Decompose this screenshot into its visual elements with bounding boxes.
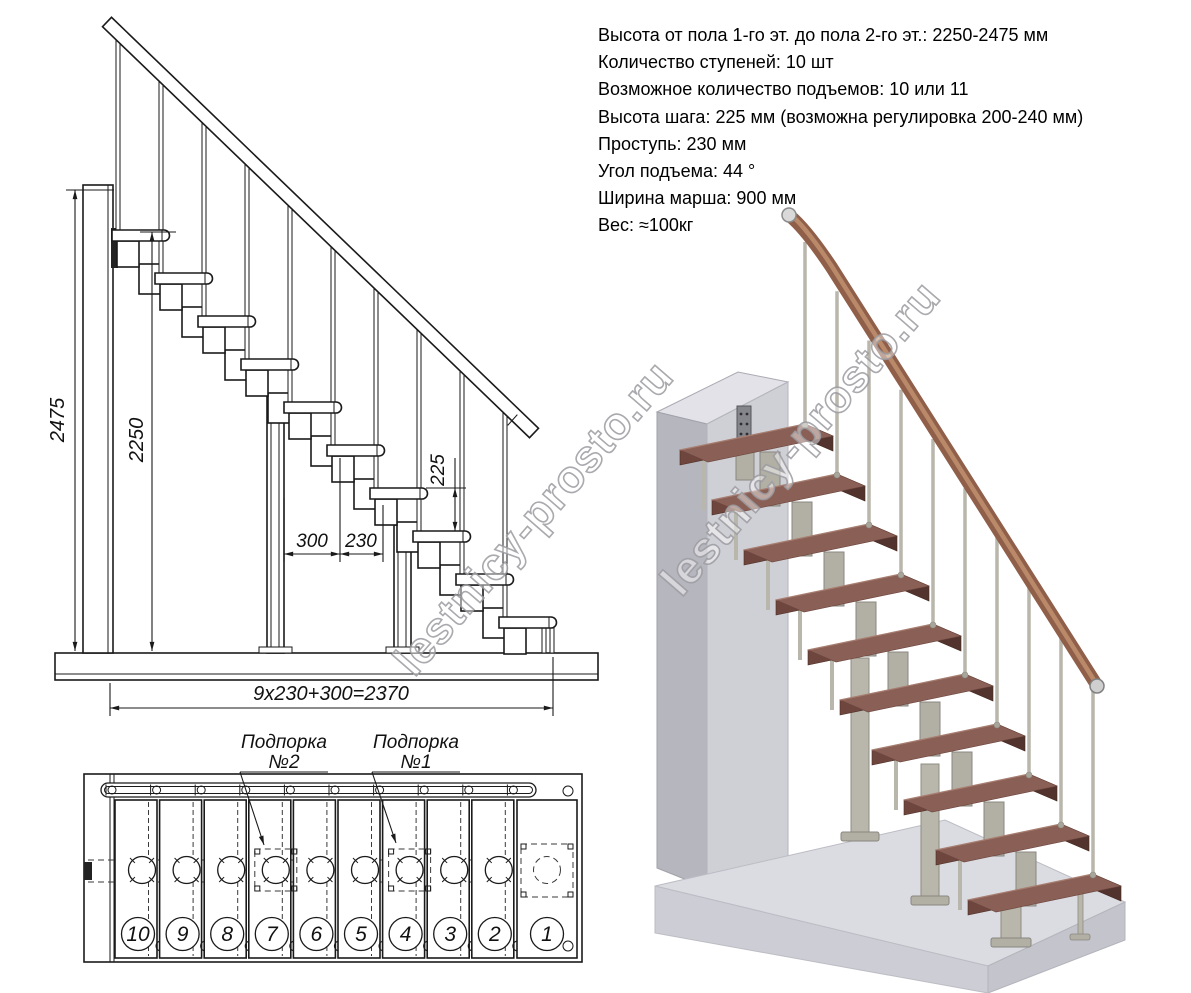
- plan-view-drawing: 10987654321 Подпорка №2 Подпорка №1: [84, 732, 582, 962]
- baluster: [460, 369, 464, 574]
- spec-line: Высота от пола 1-го эт. до пола 2-го эт.…: [598, 22, 1173, 49]
- step-module: [117, 241, 139, 267]
- dim-run-300: 300: [296, 531, 328, 552]
- baluster: [245, 162, 249, 359]
- step-module: [289, 413, 311, 439]
- spec-line: Количество ступеней: 10 шт: [598, 49, 1173, 76]
- rail-end-cap: [1090, 679, 1104, 693]
- step-module: [332, 456, 354, 482]
- tread: [241, 359, 299, 370]
- tread: [284, 402, 342, 413]
- dim-step-height: 225: [428, 454, 449, 487]
- dim-total-height: 2475: [47, 397, 69, 443]
- spec-line: Угол подъема: 44 °: [598, 158, 1173, 185]
- step-number: 9: [177, 923, 189, 946]
- dim-total-run: 9x230+300=2370: [253, 683, 409, 705]
- step1-leg: [542, 628, 546, 653]
- support2-label-line1: Подпорка: [241, 732, 327, 753]
- step-module: [160, 284, 182, 310]
- step-number: 5: [355, 923, 367, 946]
- baluster: [159, 79, 163, 273]
- side-dimensions: 2475 2250 225 300 230 9x230+300=2370: [47, 190, 553, 716]
- tread: [499, 617, 557, 628]
- spec-line: Высота шага: 225 мм (возможна регулировк…: [598, 104, 1173, 131]
- step-number: 10: [126, 923, 150, 946]
- tread: [155, 273, 213, 284]
- baluster: [417, 328, 421, 531]
- plan-handrail: [101, 783, 536, 797]
- step-number: 1: [541, 923, 553, 946]
- baluster: [374, 286, 378, 488]
- tread: [413, 531, 471, 542]
- spec-line: Ширина марша: 900 мм: [598, 185, 1173, 212]
- step-module: [504, 628, 526, 654]
- step-number: 6: [311, 923, 323, 946]
- step-number: 3: [444, 923, 456, 946]
- watermark-text-left: lestnicy-prosto.ru: [383, 351, 683, 685]
- spec-line: Вес: ≈100кг: [598, 212, 1173, 239]
- step-module: [246, 370, 268, 396]
- tread: [327, 445, 385, 456]
- plan-steps: 10987654321: [106, 785, 577, 958]
- baluster: [202, 121, 206, 316]
- tread: [370, 488, 428, 499]
- staircase-spec-sheet: { "specs": { "lines": [ "Высота от пола …: [0, 0, 1191, 993]
- side-view-drawing: 2475 2250 225 300 230 9x230+300=2370: [47, 17, 598, 716]
- step1-leg: [550, 628, 554, 653]
- step-number: 7: [266, 923, 279, 946]
- baluster: [331, 245, 335, 445]
- wall-anchor-mark: [84, 862, 92, 880]
- spec-line: Возможное количество подъемов: 10 или 11: [598, 76, 1173, 103]
- floor-base: [55, 653, 598, 680]
- spec-line: Проступь: 230 мм: [598, 131, 1173, 158]
- handrail-3d: [782, 208, 1104, 693]
- step-module: [203, 327, 225, 353]
- balusters-3d: [802, 242, 1096, 878]
- dim-floor-height: 2250: [126, 418, 148, 464]
- support1-label-line1: Подпорка: [373, 732, 459, 753]
- baluster: [288, 204, 292, 402]
- step-number: 8: [221, 923, 233, 946]
- tread: [198, 316, 256, 327]
- side-handrail: [103, 17, 539, 437]
- step-number: 2: [488, 923, 501, 946]
- dim-tread-230: 230: [344, 531, 377, 552]
- support2-label-line2: №2: [268, 752, 300, 773]
- support-post-2: [267, 396, 284, 653]
- step-module: [418, 542, 440, 568]
- support1-label-line2: №1: [400, 752, 431, 773]
- spec-panel: Высота от пола 1-го эт. до пола 2-го эт.…: [598, 22, 1173, 240]
- step-module: [375, 499, 397, 525]
- baluster: [116, 38, 120, 230]
- step-number: 4: [400, 923, 412, 946]
